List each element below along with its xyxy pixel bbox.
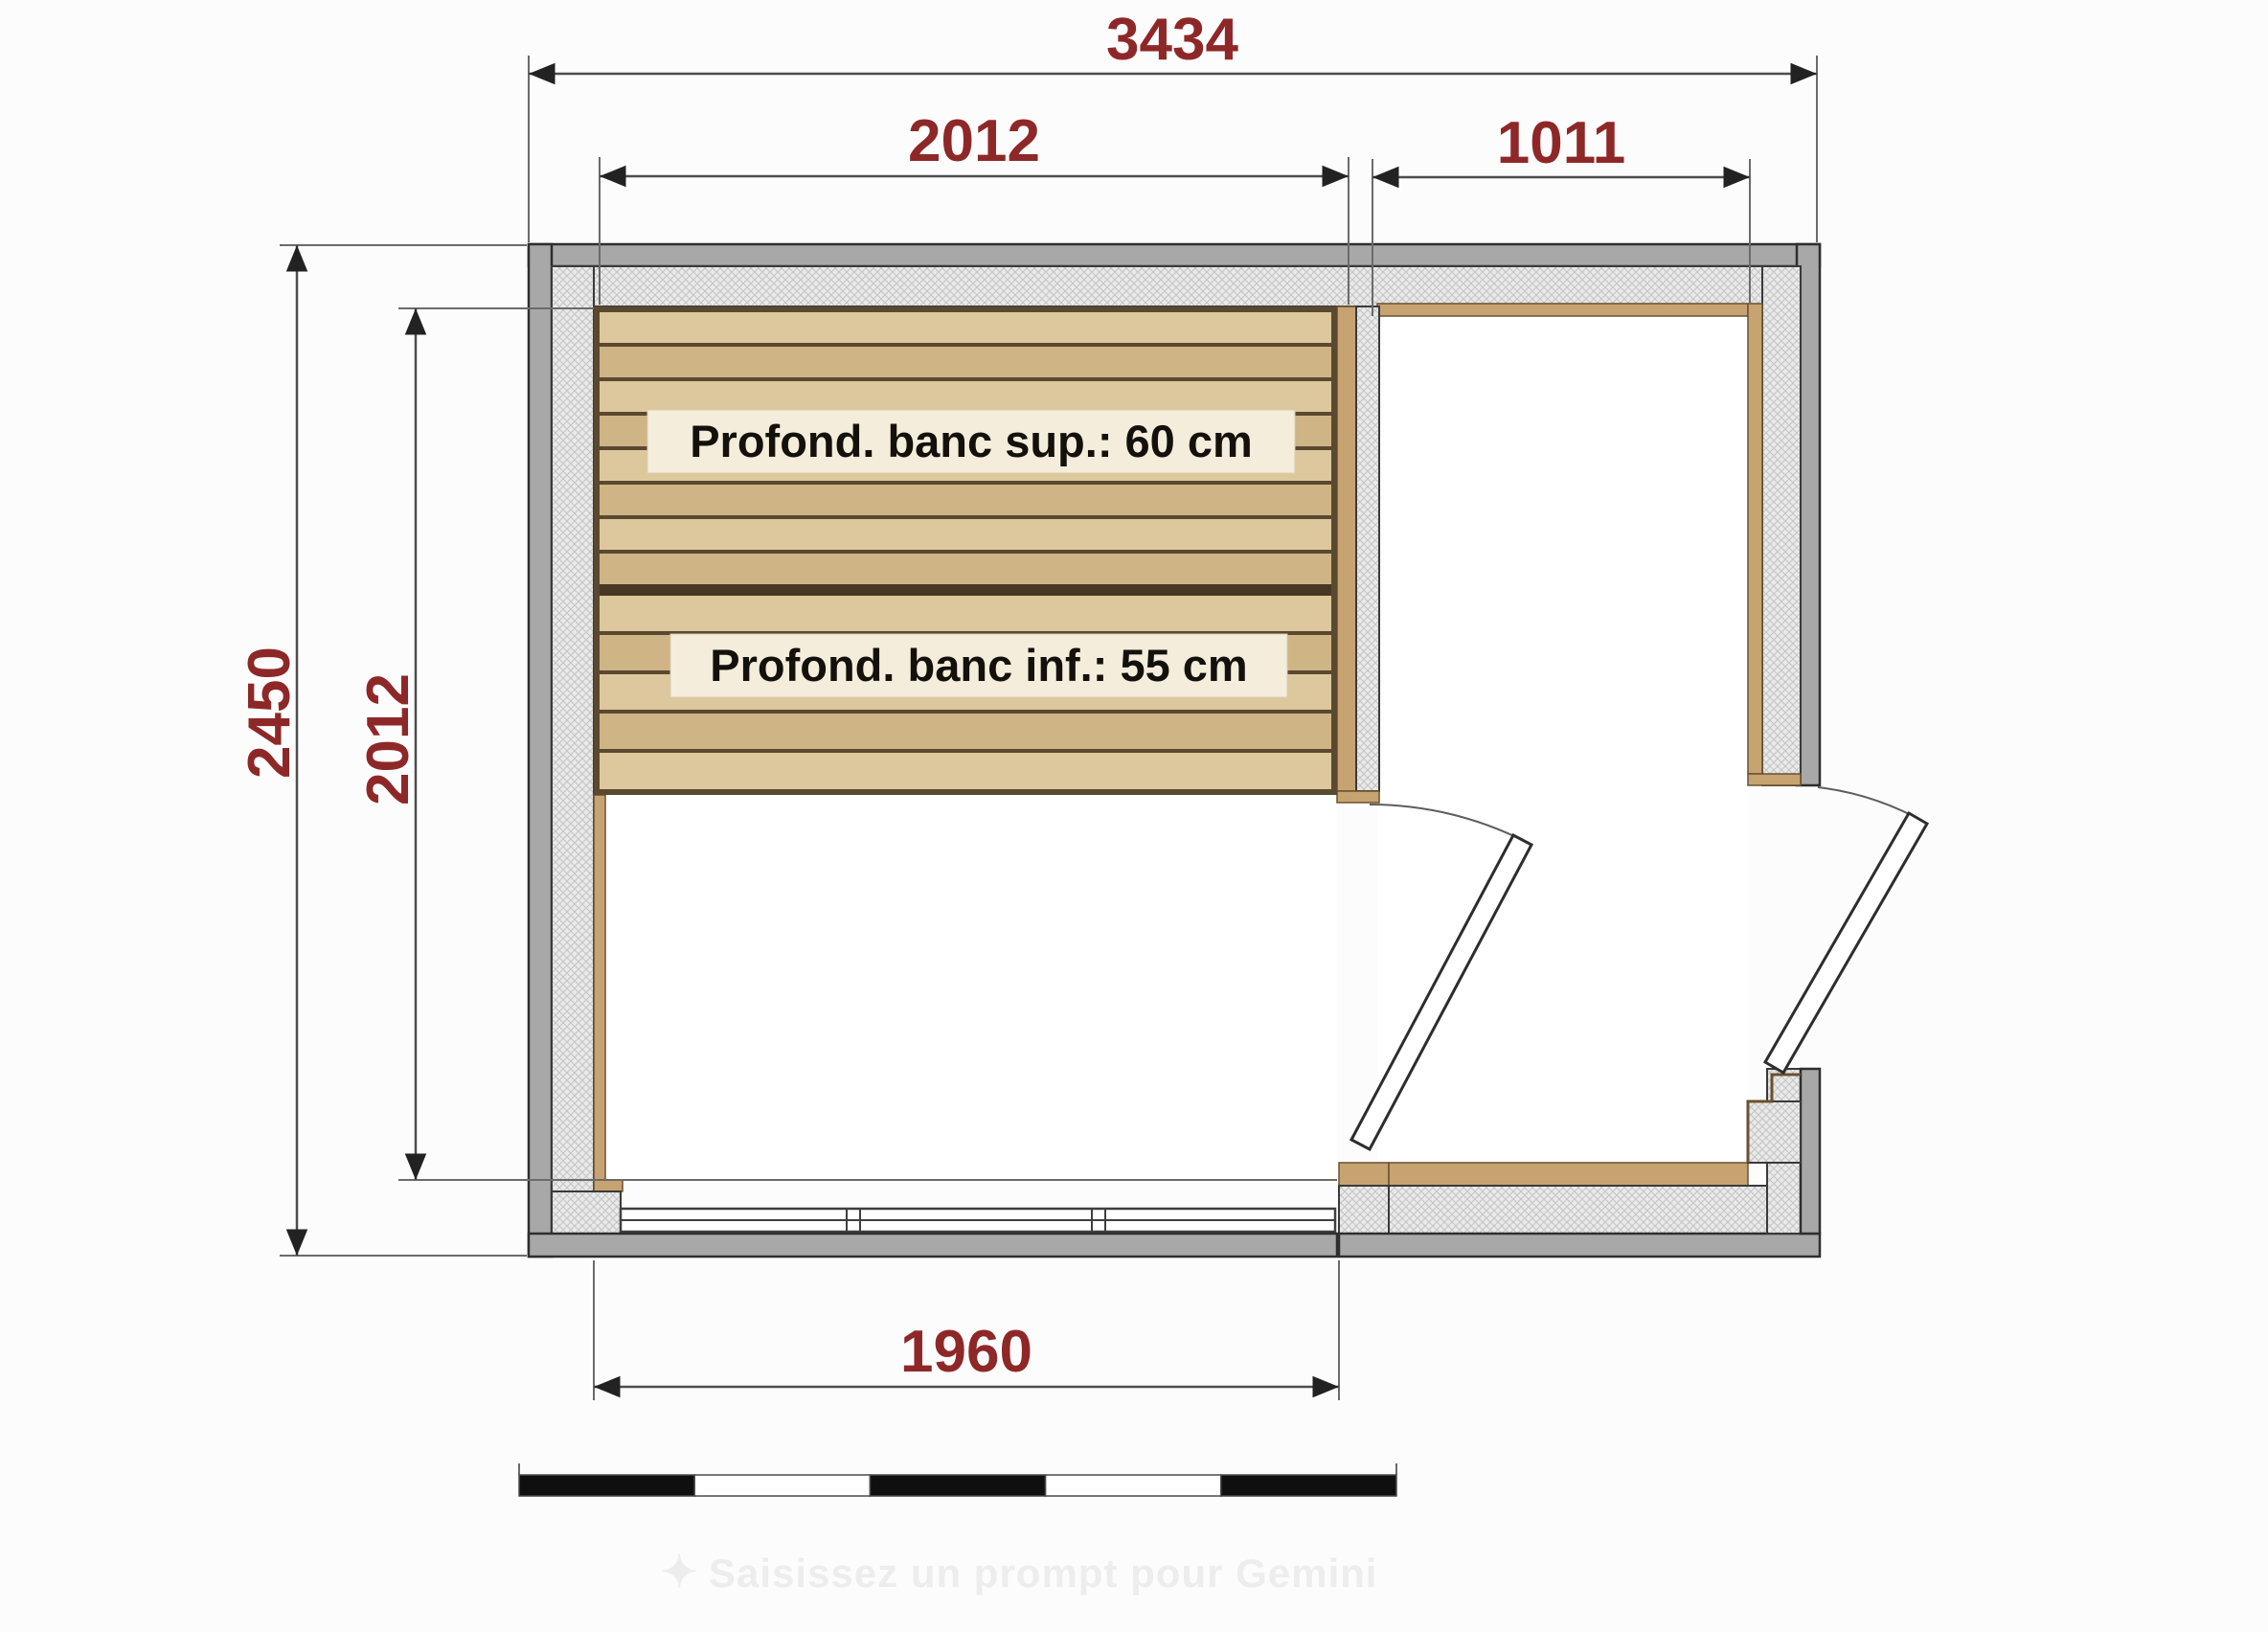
corner-jamb-step [1748,1101,1801,1163]
partition-wood-face [1337,306,1356,791]
sauna-left-trim [594,795,605,1180]
bottom-wall-trim [1389,1163,1748,1186]
wall-left-outer [529,244,552,1257]
corner-jamb-outer [1801,1069,1820,1234]
entrance-door [1765,787,1927,1073]
wall-right-insulation [1762,266,1801,785]
wall-bottom-right-outer [1339,1234,1820,1257]
vestibule-floor [1377,316,1748,1167]
partition-core [1356,306,1379,791]
dim-sauna-width-value: 2012 [908,108,1040,174]
dim-overall-width-value: 3434 [1106,7,1238,73]
bench-planks [600,312,1331,789]
wall-bottom-left-outer [529,1234,1337,1257]
door-hinge-pier [1339,1186,1389,1234]
dim-overall-depth-value: 2450 [237,646,303,779]
dim-front-width: 1960 [594,1260,1339,1400]
dim-sauna-depth-value: 2012 [355,673,421,805]
partition-wall [1337,306,1379,803]
partition-door-jamb-cap [1337,791,1379,803]
dim-front-width-value: 1960 [900,1319,1032,1385]
entrance-door-leaf [1765,813,1927,1073]
bottom-wall-insulation [1389,1186,1801,1234]
vestibule-top-trim [1377,304,1748,316]
right-wall-door-jamb-cap [1748,774,1801,785]
scale-bar [519,1463,1396,1496]
wall-left-insulation [552,266,594,1191]
sauna-floor [605,795,1337,1180]
bench-upper-label: Profond. banc sup.: 60 cm [647,410,1295,473]
dim-vestibule-width-value: 1011 [1497,110,1626,176]
watermark: ✦ Saisissez un prompt pour Gemini [661,1547,1377,1597]
wall-top-insulation [552,266,1776,306]
glass-front [529,1180,1337,1257]
floor-plan-canvas: Profond. banc sup.: 60 cm Profond. banc … [0,0,2268,1632]
bench-lower-label: Profond. banc inf.: 55 cm [670,634,1287,697]
wall-top-outer [529,244,1820,266]
floor-plan-drawing: Profond. banc sup.: 60 cm Profond. banc … [0,0,2268,1632]
bench-block: Profond. banc sup.: 60 cm Profond. banc … [594,306,1337,795]
door-hinge-pier-cap [1339,1163,1389,1186]
bench-lower-label-text: Profond. banc inf.: 55 cm [710,640,1247,691]
bench-split-line [600,584,1331,596]
glass-front-left-pier [552,1191,621,1234]
vestibule-right-trim [1748,304,1762,774]
gemini-sparkle-icon: ✦ [661,1547,698,1597]
watermark-text: Saisissez un prompt pour Gemini [709,1551,1377,1596]
bench-upper-label-text: Profond. banc sup.: 60 cm [690,416,1253,466]
sauna-left-trim-foot [594,1180,623,1191]
